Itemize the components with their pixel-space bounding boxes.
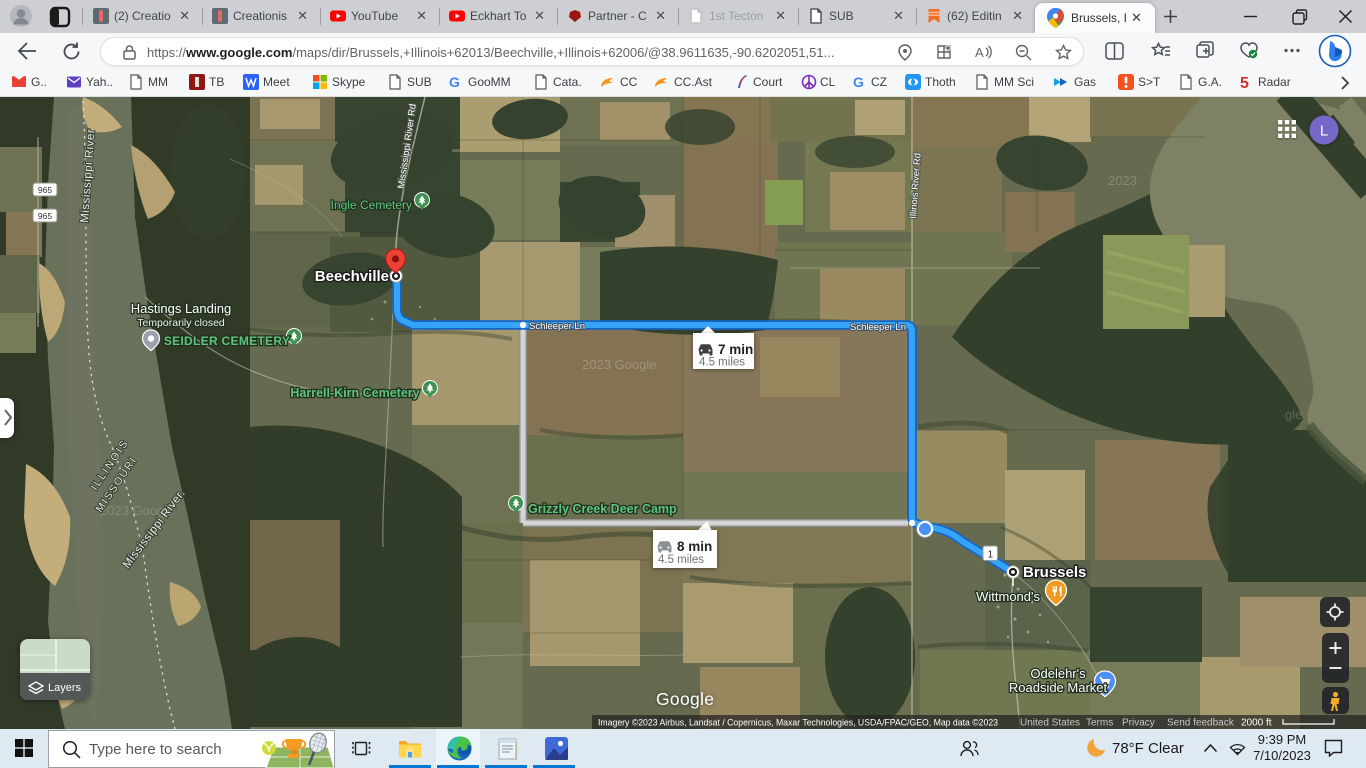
svg-text:G: G [449,74,460,90]
svg-text:965: 965 [38,211,52,221]
svg-text:Mississippi River: Mississippi River [79,128,98,223]
svg-text:Illinois River Rd: Illinois River Rd [908,153,924,220]
svg-text:A: A [975,45,984,60]
svg-text:G: G [853,74,864,90]
svg-text:8 min: 8 min [677,539,712,554]
svg-text:L: L [1320,123,1328,140]
svg-text:Imagery ©2023 Airbus, Landsat: Imagery ©2023 Airbus, Landsat / Copernic… [598,718,998,728]
svg-text:965: 965 [38,185,52,195]
svg-text:7 min: 7 min [718,342,753,357]
svg-text:1: 1 [987,549,993,561]
svg-text:Mississippi River.: Mississippi River. [121,487,188,570]
svg-text:Privacy: Privacy [1122,718,1155,729]
svg-text:Wittmond's: Wittmond's [976,589,1040,604]
svg-text:Hastings Landing: Hastings Landing [131,301,231,316]
svg-text:Odelehr's: Odelehr's [1030,666,1086,681]
svg-text:5: 5 [1240,75,1249,90]
svg-text:SEIDLER CEMETERY: SEIDLER CEMETERY [164,334,290,348]
svg-text:Grizzly Creek Deer Camp: Grizzly Creek Deer Camp [528,502,677,516]
svg-text:Schleeper Ln: Schleeper Ln [529,321,585,332]
svg-text:Mississippi River Rd: Mississippi River Rd [396,103,419,189]
svg-text:Roadside Market: Roadside Market [1009,680,1108,695]
svg-text:Google: Google [656,689,714,709]
svg-text:Beechville: Beechville [315,268,389,285]
svg-text:Send feedback: Send feedback [1167,718,1235,729]
svg-text:Layers: Layers [48,682,82,694]
svg-text:Terms: Terms [1086,718,1113,729]
svg-text:Brussels: Brussels [1023,564,1086,581]
svg-text:Harrell-Kirn Cemetery: Harrell-Kirn Cemetery [290,386,419,400]
svg-text:Temporarily closed: Temporarily closed [137,317,225,329]
svg-text:Schleeper Ln: Schleeper Ln [850,322,906,333]
svg-text:Ingle Cemetery: Ingle Cemetery [331,198,412,212]
svg-text:4.5 miles: 4.5 miles [699,357,745,369]
svg-text:4.5 miles: 4.5 miles [658,554,704,566]
svg-text:United States: United States [1020,718,1080,729]
svg-text:2000 ft: 2000 ft [1241,718,1272,729]
